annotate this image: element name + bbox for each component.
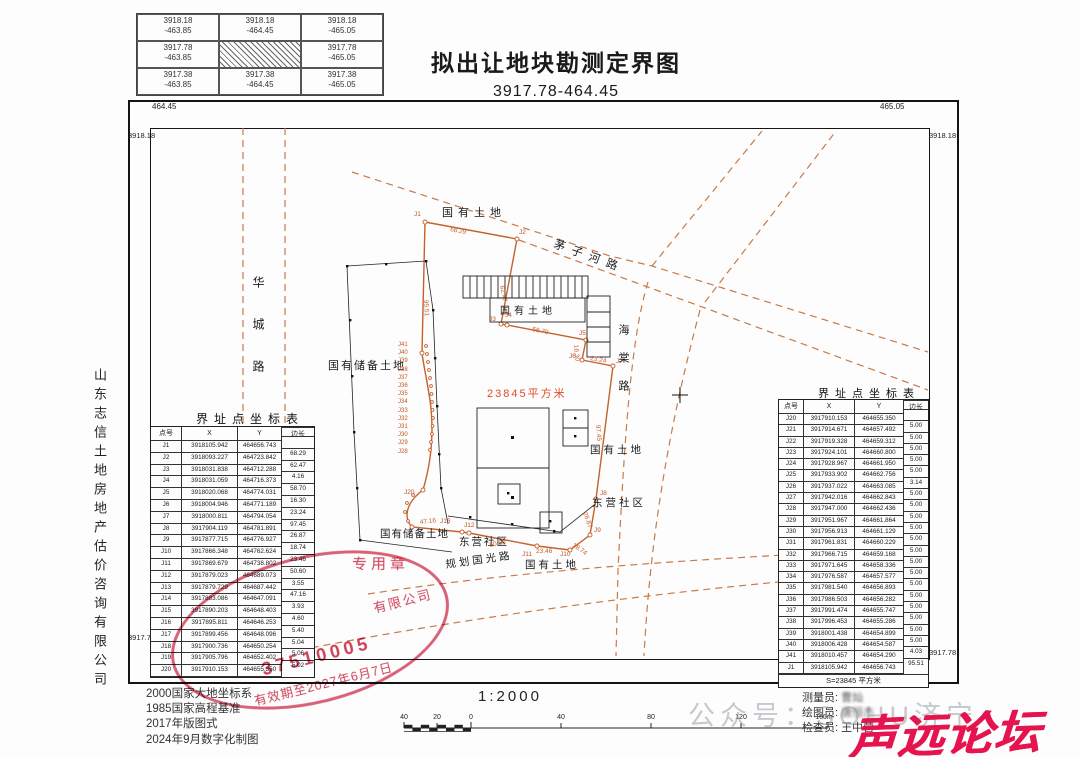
forum-logo: 声远论坛: [847, 696, 1044, 757]
right-coordinate-table: 点号 X Y 边长 J20 3917910.153 464655.350 J21…: [778, 399, 929, 688]
svg-text:J5: J5: [579, 330, 586, 337]
scale-ratio-label: 1:2000: [420, 688, 600, 705]
svg-text:40: 40: [557, 714, 565, 721]
grid-cell: 3917.78-463.85: [137, 41, 219, 68]
grid-cell: 3917.78-465.05: [301, 41, 383, 68]
svg-text:J2: J2: [519, 229, 526, 236]
frame-label-top-right: 465.05: [880, 102, 904, 111]
frame-label-top-left: 464.45: [152, 102, 176, 111]
reserve-land-left-label: 国有储备土地: [328, 358, 406, 372]
reserve-land-bottom-label: 国有储备土地: [380, 527, 449, 540]
svg-text:J10: J10: [560, 551, 571, 558]
svg-text:20: 20: [433, 714, 441, 721]
huacheng-road-label: 华城路: [250, 276, 267, 402]
page-title: 拟出让地块勘测定界图: [396, 44, 716, 78]
svg-text:J8: J8: [600, 490, 607, 497]
svg-text:J20: J20: [404, 489, 415, 496]
state-land-bottom-label: 国有土地: [525, 558, 579, 571]
dongying-right-label: 东营社区: [592, 496, 646, 509]
svg-text:40: 40: [400, 714, 408, 721]
parcel-boundary: [404, 220, 615, 552]
svg-text:0: 0: [469, 714, 473, 721]
grid-cell: 3918.18-463.85: [137, 14, 219, 41]
svg-text:26.87: 26.87: [581, 511, 593, 529]
svg-text:J1: J1: [414, 211, 421, 218]
svg-text:80: 80: [647, 714, 655, 721]
note-line: 2017年版图式: [146, 717, 258, 732]
svg-text:J3: J3: [489, 316, 496, 323]
maozihe-road-label: 茅子河路: [552, 237, 626, 275]
svg-text:95.51: 95.51: [422, 300, 430, 317]
building-center-dots: [507, 417, 576, 522]
seal-top-text: 专用章: [352, 553, 409, 574]
svg-text:16.30: 16.30: [572, 345, 580, 362]
haitang-road-label: 海棠路: [615, 324, 631, 408]
svg-text:68.29: 68.29: [450, 226, 468, 236]
grid-cell: 3917.38-464.45: [219, 68, 301, 95]
grid-cell: 3918.18-464.45: [219, 14, 301, 41]
svg-text:18.74: 18.74: [571, 542, 589, 557]
svg-text:J9: J9: [594, 527, 601, 534]
survey-map-document: 3918.18-463.85 3918.18-464.45 3918.18-46…: [0, 0, 1080, 757]
grid-cell: 3917.38-463.85: [137, 68, 219, 95]
page-subtitle: 3917.78-464.45: [396, 83, 716, 101]
company-name-vertical: 山东志信土地房地产估价咨询有限公司: [90, 368, 109, 691]
grid-cross-icon: [672, 387, 688, 403]
svg-text:J4: J4: [505, 312, 512, 319]
frame-label-right-top: 3918.18: [929, 131, 956, 140]
svg-text:J11: J11: [522, 551, 532, 558]
left-table-title: 界址点坐标表: [196, 410, 304, 427]
sheet-index-grid: 3918.18-463.85 3918.18-464.45 3918.18-46…: [136, 13, 384, 96]
svg-text:58.70: 58.70: [532, 326, 550, 336]
cadastral-black-outline: [347, 261, 594, 552]
grid-cell: 3918.18-465.05: [301, 14, 383, 41]
planned-road-label: 规划国光路: [445, 549, 514, 571]
svg-text:J13: J13: [440, 518, 451, 525]
boundary-marker-dots: [346, 260, 555, 541]
svg-text:47.16: 47.16: [419, 517, 436, 526]
svg-text:62.47: 62.47: [498, 285, 508, 303]
title-block: 拟出让地块勘测定界图 3917.78-464.45: [396, 44, 716, 101]
svg-text:23.24: 23.24: [590, 355, 608, 365]
grid-cell: 3917.38-465.05: [301, 68, 383, 95]
state-land-right-label: 国有土地: [590, 443, 644, 456]
grid-cell-current-sheet: [219, 41, 301, 68]
svg-text:97.45: 97.45: [594, 425, 602, 442]
parcel-area-label: 23845平方米: [487, 386, 567, 400]
state-land-top-label: 国有土地: [442, 205, 506, 219]
svg-text:23.46: 23.46: [536, 548, 553, 555]
j-point-cluster-labels: J41 J40 J39 J38 J37 J36 J35 J34 J33 J32 …: [398, 341, 408, 456]
note-line: 2024年9月数字化制图: [146, 733, 258, 748]
table-row: J1 3918105.942 464656.743 95.51: [779, 663, 928, 674]
frame-label-right-bottom: 3917.78: [929, 648, 956, 657]
area-total-row: S=23845 平方米: [779, 674, 928, 687]
seal-company-text: 有限公司: [371, 584, 434, 617]
svg-text:J12: J12: [464, 522, 475, 529]
